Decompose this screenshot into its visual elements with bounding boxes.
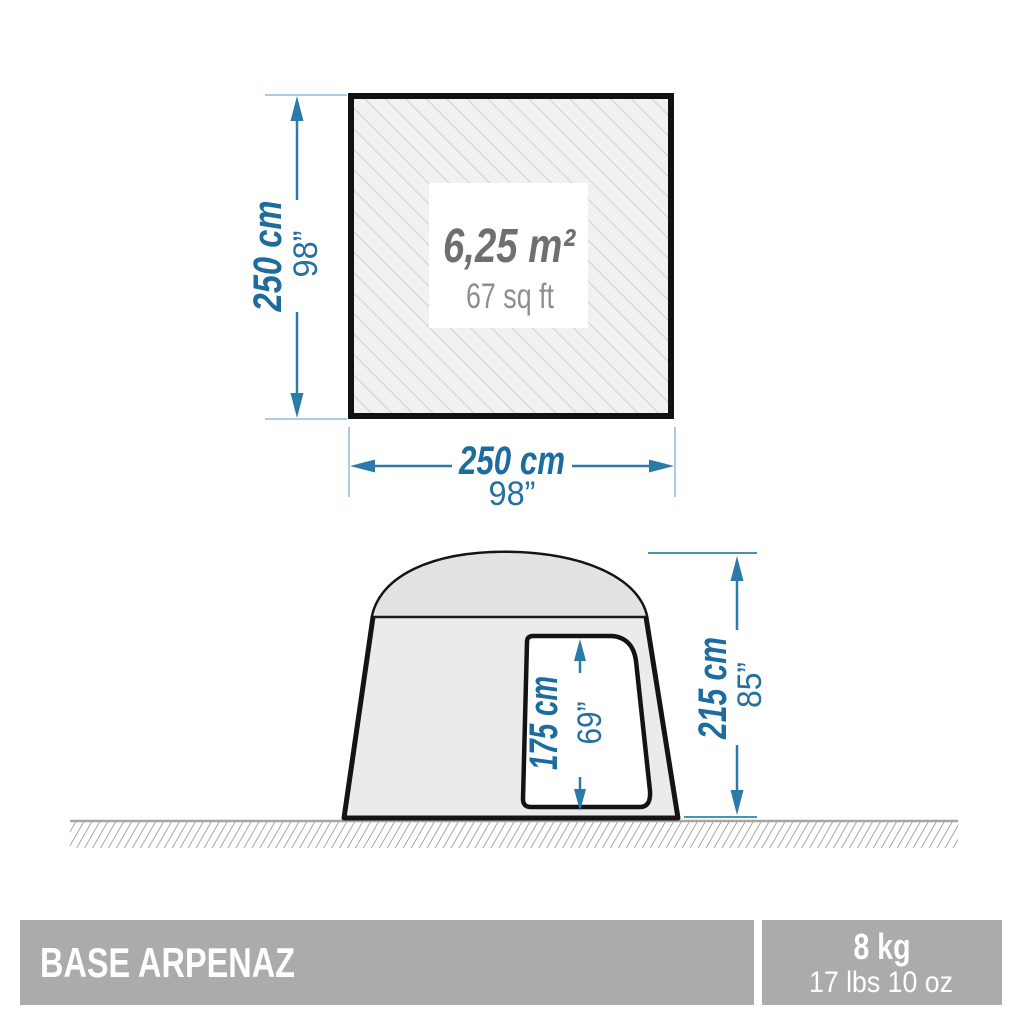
- svg-text:98”: 98”: [287, 231, 325, 278]
- svg-text:250 cm: 250 cm: [246, 201, 290, 313]
- svg-text:8 kg: 8 kg: [854, 926, 911, 967]
- svg-text:6,25 m²: 6,25 m²: [443, 220, 577, 273]
- svg-text:98”: 98”: [489, 475, 536, 513]
- svg-text:69”: 69”: [571, 702, 609, 745]
- svg-text:17 lbs 10 oz: 17 lbs 10 oz: [809, 966, 953, 999]
- svg-text:85”: 85”: [731, 662, 769, 708]
- svg-text:175 cm: 175 cm: [522, 676, 566, 770]
- svg-text:67 sq ft: 67 sq ft: [466, 277, 554, 316]
- svg-text:215 cm: 215 cm: [691, 637, 735, 740]
- svg-text:BASE ARPENAZ: BASE ARPENAZ: [40, 939, 295, 986]
